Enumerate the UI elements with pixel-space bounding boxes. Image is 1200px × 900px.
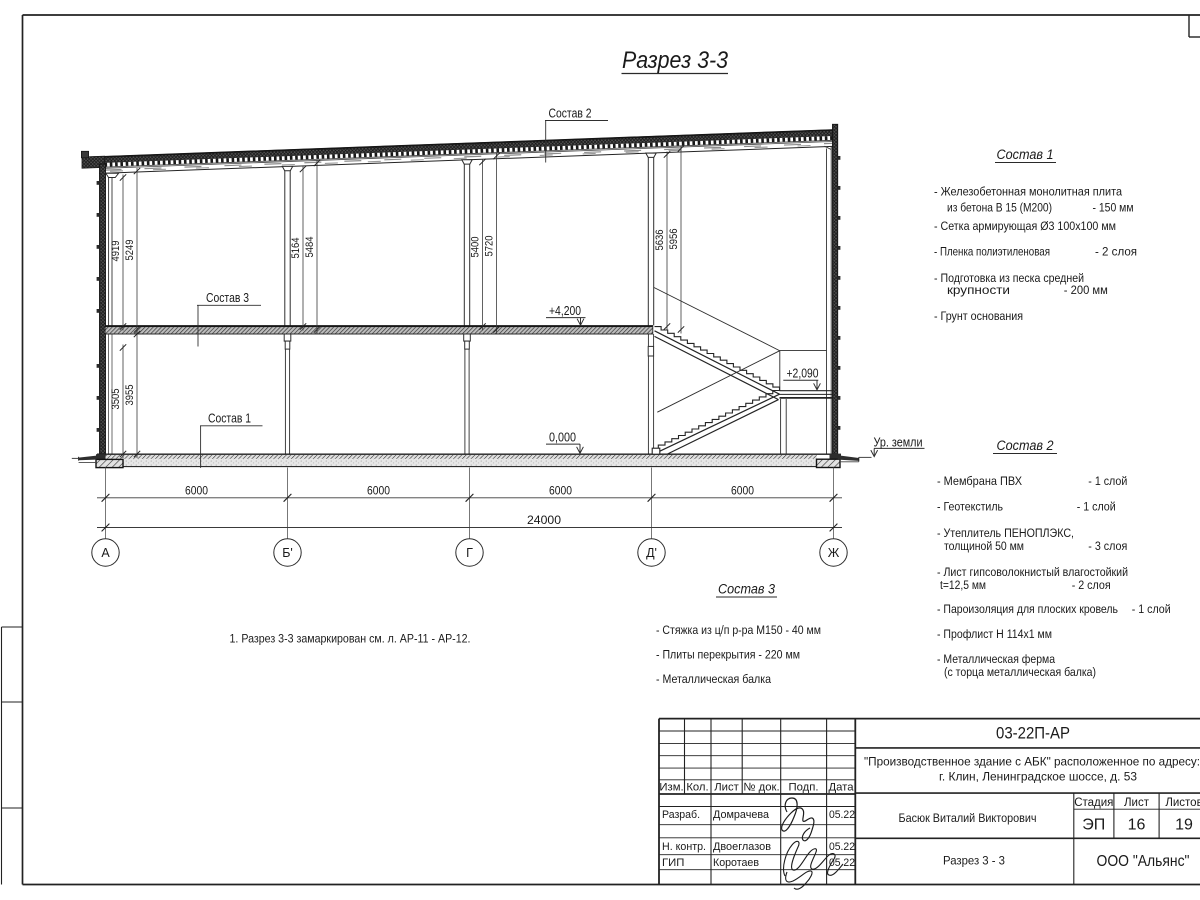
svg-text:ЭП: ЭП (1082, 817, 1105, 834)
svg-text:6000: 6000 (367, 484, 390, 498)
svg-text:- 1 слой: - 1 слой (1077, 500, 1116, 514)
svg-text:16: 16 (1128, 817, 1146, 834)
svg-text:"Производственное здание с АБК: "Производственное здание с АБК" располож… (864, 754, 1200, 768)
svg-text:Двоеглазов: Двоеглазов (713, 841, 771, 853)
svg-text:5400: 5400 (470, 237, 482, 258)
svg-text:Дата: Дата (828, 782, 854, 794)
svg-text:+4,200: +4,200 (549, 304, 581, 318)
svg-text:Разраб.: Разраб. (662, 809, 700, 821)
svg-text:- Грунт основания: - Грунт основания (934, 309, 1023, 323)
svg-text:Д': Д' (646, 546, 657, 560)
svg-text:ГИП: ГИП (662, 857, 684, 869)
svg-text:Состав 3: Состав 3 (206, 291, 249, 305)
svg-text:- Железобетонная монолитная п: - Железобетонная монолитная плита (934, 185, 1122, 199)
svg-text:Б': Б' (282, 546, 293, 560)
svg-text:- Геотекстиль: - Геотекстиль (937, 500, 1003, 514)
svg-text:03-22П-АР: 03-22П-АР (996, 724, 1070, 743)
svg-text:4919: 4919 (110, 241, 122, 262)
svg-text:5164: 5164 (290, 238, 302, 259)
svg-text:Стадия: Стадия (1074, 797, 1113, 809)
svg-text:- Лист гипсоволокнистый влагос: - Лист гипсоволокнистый влагостойкий (937, 565, 1128, 579)
svg-text:Лист: Лист (1124, 797, 1150, 809)
svg-text:- Металлическая балка: - Металлическая балка (656, 672, 771, 686)
svg-text:05.22: 05.22 (829, 841, 855, 853)
svg-text:19: 19 (1175, 817, 1193, 834)
svg-text:№ док.: № док. (743, 782, 779, 794)
svg-text:- Стяжка из ц/п р-ра М150 - 40: - Стяжка из ц/п р-ра М150 - 40 мм (656, 623, 821, 637)
svg-text:5249: 5249 (124, 240, 136, 261)
svg-text:Состав 2: Состав 2 (549, 106, 592, 120)
svg-text:Г: Г (466, 546, 473, 560)
svg-text:- Пленка полиэтиленовая: - Пленка полиэтиленовая (934, 245, 1050, 259)
svg-text:0,000: 0,000 (549, 430, 576, 444)
svg-text:5956: 5956 (668, 229, 680, 250)
svg-text:6000: 6000 (185, 484, 208, 498)
svg-text:А: А (101, 546, 110, 560)
svg-text:3505: 3505 (110, 389, 122, 410)
svg-text:5720: 5720 (484, 236, 496, 257)
svg-text:- 150 мм: - 150 мм (1093, 200, 1134, 214)
svg-text:- 1 слой: - 1 слой (1132, 602, 1171, 616)
svg-text:- Сетка армирующая Ø3 100х100: - Сетка армирующая Ø3 100х100 мм (934, 219, 1116, 233)
svg-text:толщиной 50 мм: толщиной 50 мм (944, 539, 1024, 553)
svg-text:- Профлист Н 114х1 мм: - Профлист Н 114х1 мм (937, 627, 1052, 641)
svg-text:из бетона В 15 (М200): из бетона В 15 (М200) (947, 200, 1052, 214)
svg-text:05.22: 05.22 (829, 857, 855, 869)
svg-text:6000: 6000 (549, 484, 572, 498)
svg-text:- 1 слой: - 1 слой (1088, 474, 1127, 488)
svg-text:Разрез 3 - 3: Разрез 3 - 3 (943, 854, 1005, 868)
svg-text:Подп.: Подп. (788, 782, 818, 794)
svg-text:Домрачева: Домрачева (713, 809, 770, 821)
svg-text:Состав 1: Состав 1 (208, 411, 251, 425)
svg-text:Ур. земли: Ур. земли (874, 435, 923, 449)
svg-text:Состав 2: Состав 2 (997, 438, 1054, 453)
svg-text:6000: 6000 (731, 484, 754, 498)
svg-text:Н. контр.: Н. контр. (662, 841, 706, 853)
svg-text:(с торца металлическая балка): (с торца металлическая балка) (944, 665, 1096, 679)
svg-text:г. Клин, Ленинградское шоссе,: г. Клин, Ленинградское шоссе, д. 53 (939, 769, 1137, 783)
svg-text:Разрез 3-3: Разрез 3-3 (622, 47, 728, 74)
svg-text:Листов: Листов (1165, 797, 1200, 809)
svg-text:Состав 3: Состав 3 (718, 582, 775, 597)
svg-text:Басюк Виталий Викторович: Басюк Виталий Викторович (899, 811, 1037, 825)
svg-text:Состав 1: Состав 1 (997, 147, 1054, 162)
svg-text:Кол.: Кол. (686, 782, 708, 794)
svg-text:- Мембрана ПВХ: - Мембрана ПВХ (937, 474, 1022, 488)
svg-text:3955: 3955 (124, 385, 136, 406)
svg-text:- Пароизоляция для плоских кро: - Пароизоляция для плоских кровель (937, 602, 1118, 616)
svg-text:+2,090: +2,090 (787, 367, 819, 381)
svg-text:24000: 24000 (527, 513, 561, 527)
svg-text:Коротаев: Коротаев (713, 857, 759, 869)
svg-text:крупности: крупности (947, 283, 1010, 297)
svg-text:- Металлическая ферма: - Металлическая ферма (937, 652, 1055, 666)
svg-text:Изм.: Изм. (659, 782, 683, 794)
svg-text:- 2 слоя: - 2 слоя (1072, 578, 1111, 592)
svg-text:Лист: Лист (714, 782, 739, 794)
svg-text:- 2 слоя: - 2 слоя (1095, 245, 1137, 259)
svg-text:- 3 слоя: - 3 слоя (1088, 539, 1127, 553)
svg-text:- Плиты перекрытия - 220 мм: - Плиты перекрытия - 220 мм (656, 648, 800, 662)
svg-text:5484: 5484 (304, 237, 316, 258)
svg-text:05.22: 05.22 (829, 809, 855, 821)
svg-text:1. Разрез 3-3 замаркирован см.: 1. Разрез 3-3 замаркирован см. л. АР-11 … (230, 632, 471, 646)
svg-text:Ж: Ж (828, 546, 840, 560)
svg-text:ООО "Альянс": ООО "Альянс" (1097, 853, 1190, 870)
svg-text:t=12,5 мм: t=12,5 мм (940, 578, 986, 592)
svg-text:- 200 мм: - 200 мм (1064, 283, 1108, 297)
svg-text:5636: 5636 (654, 230, 666, 251)
